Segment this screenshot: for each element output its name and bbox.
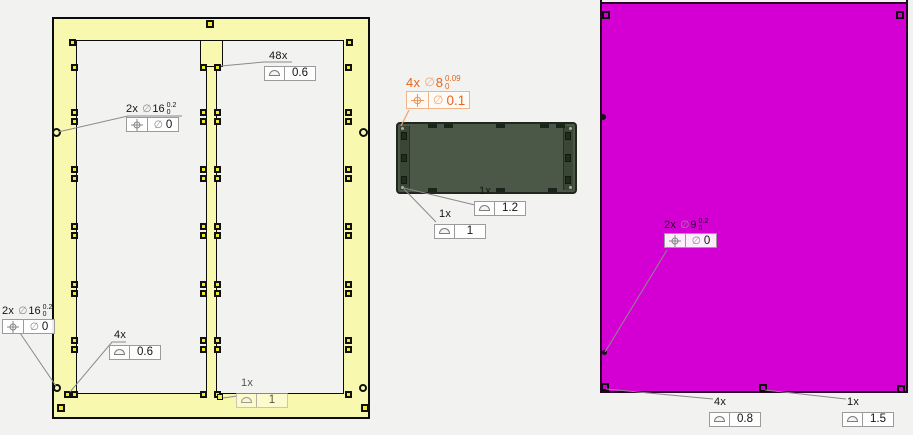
- fastener-marker: [71, 232, 78, 239]
- hole-d16-marker: [359, 128, 368, 137]
- highlighted-corner-marker: [217, 394, 223, 400]
- callout-frame-position-d16-low[interactable]: 2x ∅ 16 0.2 0 ∅0: [2, 305, 55, 338]
- tolerance-value: 0.1: [446, 93, 465, 108]
- board-edge-notch: [565, 176, 571, 184]
- feature-control-frame[interactable]: 1: [434, 224, 486, 239]
- panel-corner-tick: [600, 0, 602, 5]
- callout-board-position-d8[interactable]: 4x ∅ 8 0.09 0 ∅0.1: [406, 75, 470, 112]
- callout-qty: 1x: [439, 208, 451, 221]
- panel-corner-tick: [906, 0, 908, 5]
- fastener-marker: [206, 20, 214, 28]
- callout-panel-profile-corner[interactable]: 4x 0.8: [709, 396, 761, 427]
- board-edge-notch: [401, 132, 407, 140]
- board-part-body[interactable]: [396, 122, 577, 194]
- callout-qty: 4x: [406, 75, 420, 90]
- fastener-marker: [346, 39, 353, 46]
- board-tab: [556, 124, 565, 128]
- fastener-marker: [214, 118, 221, 125]
- fastener-marker: [214, 64, 221, 71]
- fastener-marker: [345, 290, 352, 297]
- board-edge-notch: [565, 154, 571, 162]
- board-edge-notch: [401, 176, 407, 184]
- fastener-marker: [200, 281, 207, 288]
- callout-frame-profile-single[interactable]: 1x 1: [236, 377, 288, 408]
- fastener-marker: [57, 404, 65, 412]
- fastener-marker: [345, 109, 352, 116]
- feature-control-frame[interactable]: ∅0.1: [406, 91, 470, 109]
- fastener-marker: [200, 64, 207, 71]
- fastener-marker: [71, 118, 78, 125]
- fastener-marker: [214, 232, 221, 239]
- callout-qty: 2x: [664, 219, 676, 232]
- profile-of-surface-icon: [237, 394, 256, 407]
- board-screw: [401, 127, 404, 130]
- fastener-marker: [345, 175, 352, 182]
- callout-qty: 2x: [2, 305, 14, 318]
- panel-screw-marker: [602, 11, 610, 19]
- fastener-marker: [200, 109, 207, 116]
- fastener-marker: [214, 175, 221, 182]
- fastener-marker: [200, 166, 207, 173]
- fastener-marker: [71, 223, 78, 230]
- feature-control-frame[interactable]: ∅0: [664, 233, 717, 248]
- callout-qty: 1x: [241, 377, 253, 390]
- tolerance-value: 0.8: [737, 413, 753, 425]
- callout-qty: 1x: [479, 185, 491, 198]
- tolerance-stack: 0.2 0: [699, 219, 709, 232]
- dimension-value: 9: [690, 219, 696, 232]
- tolerance-value: 0: [42, 321, 48, 333]
- panel-part-body[interactable]: [600, 2, 908, 393]
- fastener-marker: [345, 118, 352, 125]
- dimension-value: 16: [152, 103, 164, 116]
- tolerance-stack: 0.2 0: [43, 305, 53, 318]
- tolerance-value: 1.2: [502, 202, 518, 214]
- fastener-marker: [71, 64, 78, 71]
- fastener-marker: [71, 346, 78, 353]
- profile-of-surface-icon: [110, 346, 129, 359]
- fastener-marker: [71, 290, 78, 297]
- fastener-marker: [71, 175, 78, 182]
- board-tab: [428, 188, 437, 192]
- tolerance-stack: 0.2 0: [167, 103, 177, 116]
- cad-viewport: 48x 0.6 2x ∅ 16 0.2 0 ∅0 2x ∅ 16: [0, 0, 913, 435]
- hole-d16-marker: [359, 384, 367, 392]
- position-icon: [127, 118, 147, 131]
- fastener-marker: [71, 337, 78, 344]
- dimension-value: 16: [28, 305, 40, 318]
- callout-qty: 4x: [114, 329, 126, 342]
- fastener-marker: [361, 404, 369, 412]
- board-tab: [428, 124, 437, 128]
- diameter-icon: ∅: [18, 305, 27, 318]
- callout-qty: 48x: [269, 50, 288, 63]
- fastener-marker: [200, 290, 207, 297]
- board-screw: [401, 186, 404, 189]
- fastener-marker: [71, 109, 78, 116]
- position-icon: [665, 234, 685, 247]
- board-left-edge: [400, 126, 410, 190]
- board-tab: [444, 124, 453, 128]
- hole-d9-marker: [602, 350, 607, 355]
- dimension-value: 8: [436, 75, 443, 90]
- fastener-marker: [345, 223, 352, 230]
- hole-d16-marker: [53, 384, 61, 392]
- board-screw: [569, 127, 572, 130]
- tolerance-value: 0: [704, 235, 710, 247]
- diameter-icon: ∅: [424, 75, 434, 90]
- board-tab: [548, 188, 557, 192]
- board-edge-notch: [401, 154, 407, 162]
- profile-of-surface-icon: [843, 413, 862, 426]
- callout-qty: 2x: [126, 103, 138, 116]
- profile-of-surface-icon: [435, 225, 454, 238]
- position-icon: [407, 92, 428, 108]
- board-screw: [569, 186, 572, 189]
- fastener-marker: [214, 223, 221, 230]
- diameter-icon: ∅: [30, 321, 39, 333]
- fastener-marker: [345, 346, 352, 353]
- fastener-marker: [214, 346, 221, 353]
- fastener-marker: [200, 175, 207, 182]
- diameter-icon: ∅: [680, 219, 689, 232]
- fastener-marker: [71, 281, 78, 288]
- fastener-marker: [214, 290, 221, 297]
- feature-control-frame[interactable]: 1.5: [842, 412, 894, 427]
- fastener-marker: [200, 346, 207, 353]
- feature-control-frame[interactable]: ∅0: [126, 117, 179, 132]
- tolerance-value: 0: [166, 119, 172, 131]
- tolerance-value: 1: [467, 225, 473, 237]
- board-right-edge: [563, 126, 573, 190]
- hole-d9-marker: [600, 114, 606, 120]
- fastener-marker: [214, 109, 221, 116]
- tolerance-value: 1.5: [870, 413, 886, 425]
- tolerance-stack: 0.09 0: [445, 75, 461, 90]
- panel-screw-marker: [601, 383, 609, 391]
- fastener-marker: [200, 391, 207, 398]
- fastener-marker: [345, 391, 352, 398]
- fastener-marker: [345, 337, 352, 344]
- fastener-marker: [214, 281, 221, 288]
- feature-control-frame[interactable]: 0.6: [109, 345, 161, 360]
- fastener-marker: [345, 281, 352, 288]
- panel-screw-marker: [759, 384, 767, 392]
- callout-qty: 4x: [714, 396, 726, 409]
- fastener-marker: [214, 337, 221, 344]
- panel-screw-marker: [897, 385, 905, 393]
- fastener-marker: [200, 223, 207, 230]
- fastener-marker: [345, 232, 352, 239]
- feature-control-frame[interactable]: 0.6: [264, 66, 316, 81]
- board-tab: [496, 124, 505, 128]
- tolerance-value: 0.6: [137, 346, 153, 358]
- callout-frame-profile-corner[interactable]: 4x 0.6: [109, 329, 161, 360]
- fastener-marker: [200, 232, 207, 239]
- feature-control-frame[interactable]: 0.8: [709, 412, 761, 427]
- fastener-marker: [345, 64, 352, 71]
- callout-qty: 1x: [847, 396, 859, 409]
- board-tab: [540, 124, 549, 128]
- tolerance-value: 0.6: [292, 67, 308, 79]
- feature-control-frame[interactable]: ∅0: [2, 319, 55, 334]
- diameter-icon: ∅: [433, 93, 443, 107]
- callout-board-profile-b[interactable]: 1x 1: [434, 208, 486, 239]
- fastener-marker: [69, 39, 76, 46]
- diameter-icon: ∅: [142, 103, 151, 116]
- panel-screw-marker: [896, 11, 904, 19]
- fastener-marker: [71, 391, 78, 398]
- board-edge-notch: [565, 132, 571, 140]
- fastener-marker: [200, 337, 207, 344]
- fastener-marker: [214, 166, 221, 173]
- profile-of-surface-icon: [710, 413, 729, 426]
- callout-panel-profile-single[interactable]: 1x 1.5: [842, 396, 894, 427]
- fastener-marker: [71, 166, 78, 173]
- callout-panel-position-d9[interactable]: 2x ∅ 9 0.2 0 ∅0: [664, 219, 717, 252]
- fastener-marker: [200, 118, 207, 125]
- hole-d16-marker: [52, 128, 61, 137]
- tolerance-value: 1: [269, 394, 275, 406]
- callout-frame-profile-all[interactable]: 48x 0.6: [264, 50, 316, 81]
- profile-of-surface-icon: [265, 67, 284, 80]
- position-icon: [3, 320, 23, 333]
- feature-control-frame[interactable]: 1: [236, 393, 288, 408]
- diameter-icon: ∅: [154, 119, 163, 131]
- fastener-marker: [64, 391, 71, 398]
- fastener-marker: [345, 166, 352, 173]
- callout-frame-position-d16-mid[interactable]: 2x ∅ 16 0.2 0 ∅0: [126, 103, 179, 136]
- diameter-icon: ∅: [692, 235, 701, 247]
